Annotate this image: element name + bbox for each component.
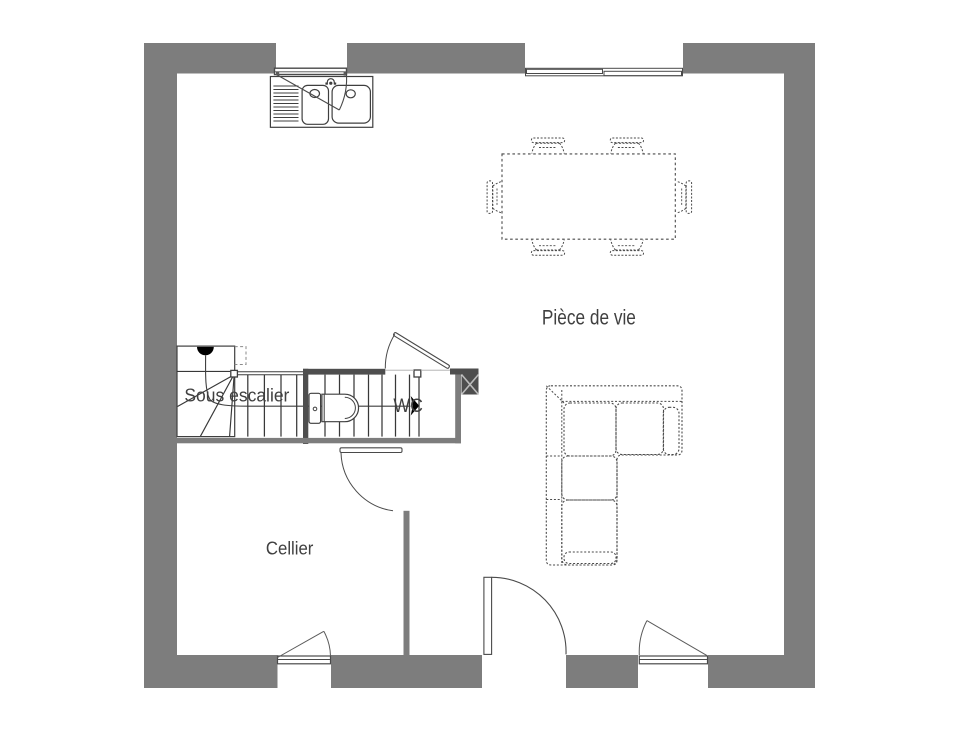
svg-text:Cellier: Cellier <box>266 538 314 559</box>
svg-text:WC: WC <box>393 396 423 417</box>
svg-text:Sous escalier: Sous escalier <box>184 384 289 405</box>
svg-text:Pièce de vie: Pièce de vie <box>542 306 636 330</box>
